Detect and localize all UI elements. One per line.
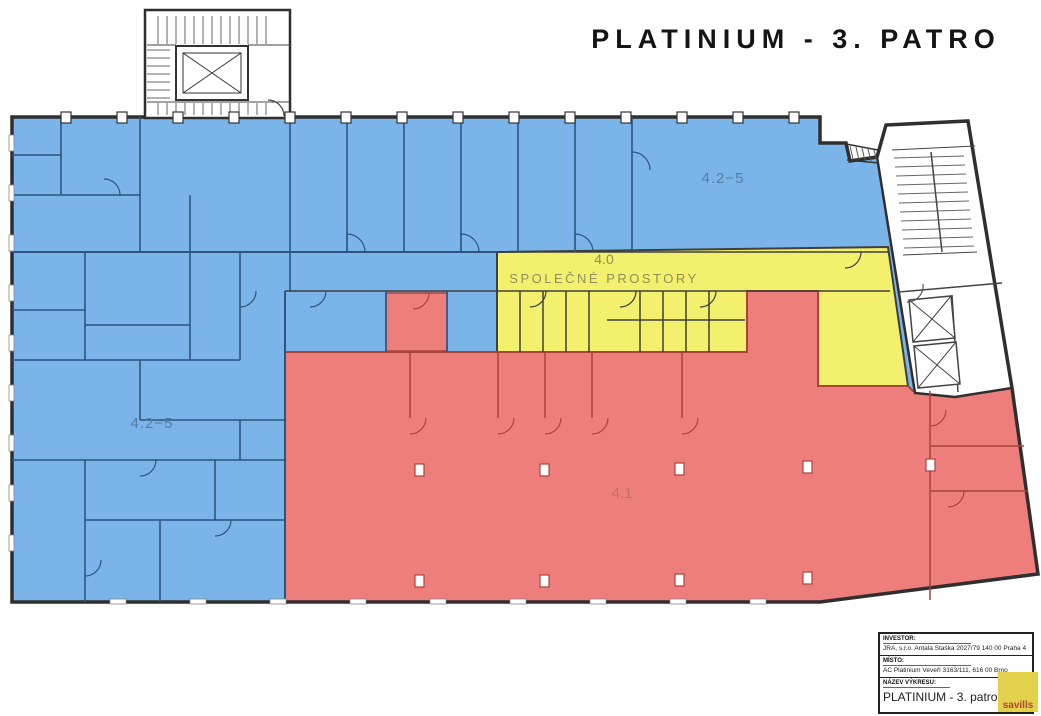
windows-left-wall [9,135,14,551]
stairwell-topleft [145,10,290,118]
elevator-wing-1 [909,296,955,342]
savills-logo: savills [998,672,1038,712]
label-unit41: 4.1 [612,485,633,502]
field-value: JRA, s.r.o. Antala Staška 2027/79 140 00… [883,644,1029,653]
floor-plan: 4.2−5 4.2−5 4.0 SPOLEČNÉ PROSTORY 4.1 [0,0,1041,716]
elevator-topleft [176,46,248,100]
label-common-name: SPOLEČNÉ PROSTORY [509,271,698,286]
floor-plan-sheet: 4.2−5 4.2−5 4.0 SPOLEČNÉ PROSTORY 4.1 PL… [0,0,1041,716]
savills-logo-text: savills [1003,699,1034,712]
title-block-field-investor: INVESTOR: JRA, s.r.o. Antala Staška 2027… [880,634,1032,656]
title-block-field-drawing-name: NÁZEV VÝKRESU: PLATINIUM - 3. patro [880,678,998,707]
drawing-name: PLATINIUM - 3. patro [883,688,995,705]
label-common-code: 4.0 [594,251,614,267]
elevator-wing-2 [914,342,960,388]
zone-red-room [386,293,447,351]
field-label: INVESTOR: [883,635,971,644]
field-label: NÁZEV VÝKRESU: [883,679,950,688]
label-office-right: 4.2−5 [702,170,745,187]
label-office-left: 4.2−5 [131,415,174,432]
title-block: INVESTOR: JRA, s.r.o. Antala Staška 2027… [878,632,1034,714]
sheet-title: PLATINIUM - 3. PATRO [576,24,1016,55]
field-label: MÍSTO: [883,657,971,666]
